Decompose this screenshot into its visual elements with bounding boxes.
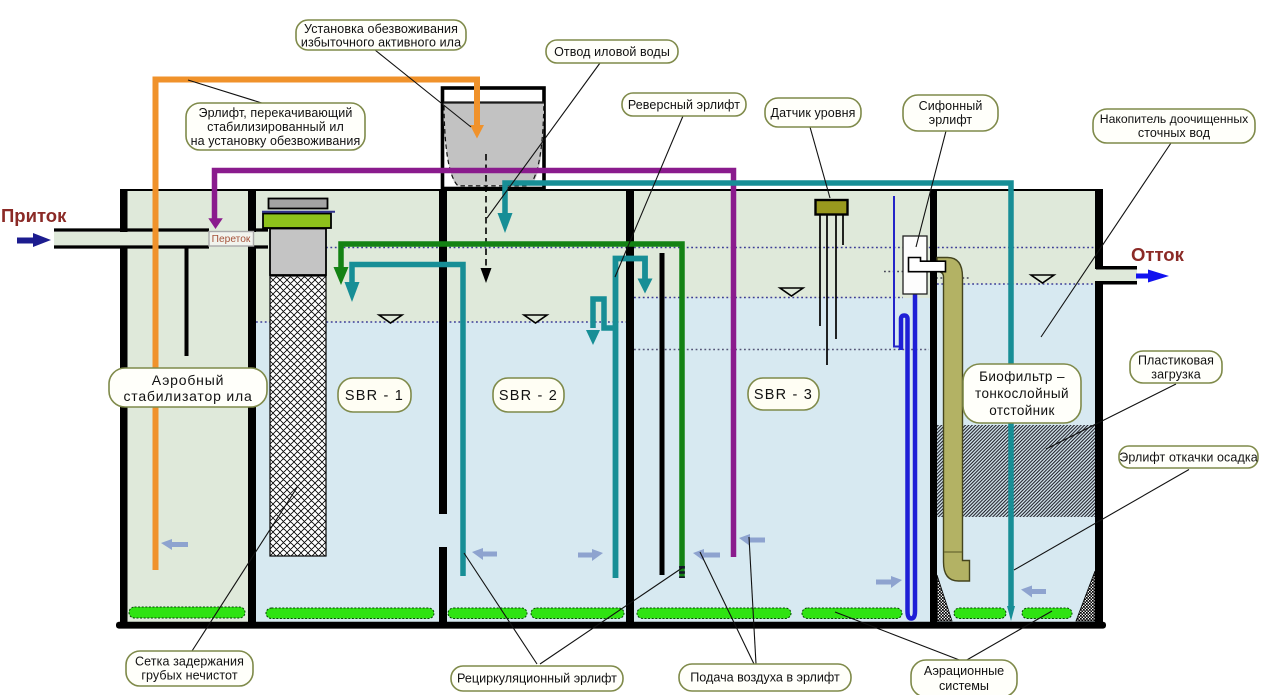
svg-text:SBR - 2: SBR - 2 — [499, 388, 558, 404]
svg-text:загрузка: загрузка — [1151, 368, 1201, 382]
svg-text:Пластиковая: Пластиковая — [1138, 354, 1214, 368]
svg-text:Рециркуляционный эрлифт: Рециркуляционный эрлифт — [457, 672, 617, 686]
svg-text:стабилизатор ила: стабилизатор ила — [123, 388, 252, 404]
svg-text:Эрлифт, перекачивающий: Эрлифт, перекачивающий — [199, 106, 353, 120]
svg-text:Отток: Отток — [1131, 244, 1185, 265]
svg-text:SBR - 3: SBR - 3 — [754, 387, 813, 403]
svg-text:Аэрационные: Аэрационные — [924, 664, 1004, 678]
svg-text:Отвод иловой воды: Отвод иловой воды — [554, 45, 670, 59]
svg-text:SBR - 1: SBR - 1 — [345, 388, 404, 404]
svg-text:Переток: Переток — [212, 234, 251, 245]
svg-text:сточных вод: сточных вод — [1138, 126, 1211, 140]
svg-text:Аэробный: Аэробный — [152, 372, 224, 388]
svg-text:эрлифт: эрлифт — [929, 113, 973, 127]
svg-text:избыточного активного ила: избыточного активного ила — [301, 36, 461, 50]
svg-text:Подача воздуха в эрлифт: Подача воздуха в эрлифт — [690, 671, 840, 685]
svg-text:тонкослойный: тонкослойный — [975, 386, 1069, 401]
svg-text:Сетка задержания: Сетка задержания — [135, 655, 244, 669]
svg-text:на установку обезвоживания: на установку обезвоживания — [191, 134, 361, 148]
svg-text:Эрлифт откачки осадка: Эрлифт откачки осадка — [1119, 451, 1258, 465]
svg-text:отстойник: отстойник — [989, 403, 1055, 418]
svg-text:системы: системы — [939, 679, 989, 693]
svg-text:грубых нечистот: грубых нечистот — [141, 669, 237, 683]
svg-text:Накопитель доочищенных: Накопитель доочищенных — [1100, 112, 1248, 126]
svg-text:Биофильтр –: Биофильтр – — [979, 369, 1065, 384]
svg-text:стабилизированный ил: стабилизированный ил — [207, 120, 344, 134]
svg-text:Установка обезвоживания: Установка обезвоживания — [304, 22, 458, 36]
svg-text:Датчик уровня: Датчик уровня — [771, 106, 856, 120]
svg-text:Приток: Приток — [1, 205, 67, 226]
svg-text:Сифонный: Сифонный — [919, 99, 983, 113]
svg-text:Реверсный эрлифт: Реверсный эрлифт — [628, 98, 740, 112]
